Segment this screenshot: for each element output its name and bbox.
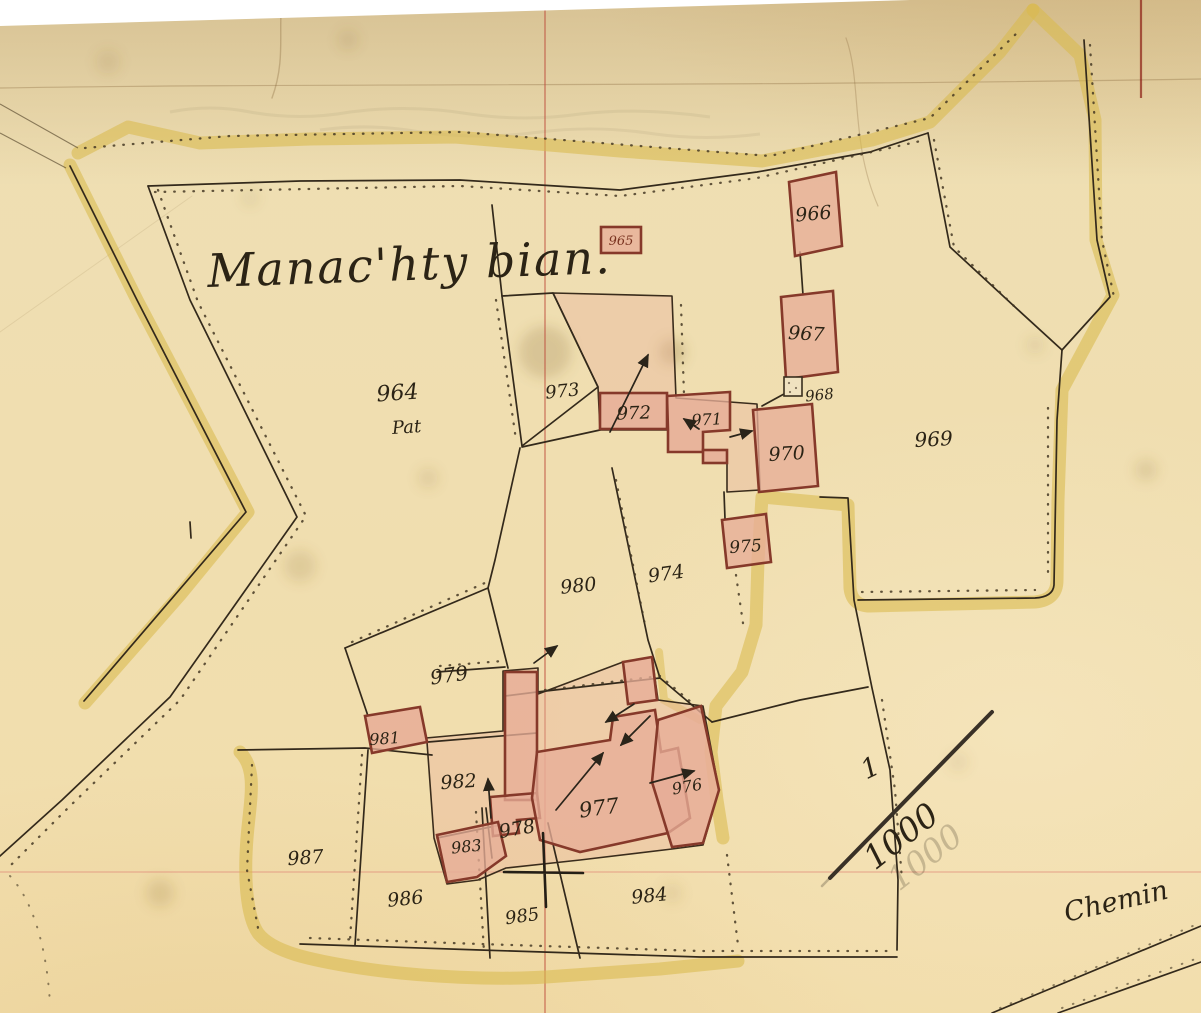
- parcel-label-982: 982: [440, 770, 478, 794]
- parcel-label-981: 981: [369, 728, 401, 749]
- parcel-label-968: 968: [804, 385, 834, 406]
- parcel-label-986: 986: [386, 886, 424, 912]
- parcel-label-984: 984: [630, 883, 668, 909]
- map-canvas: Manac'hty bian. 964 Pat 965 966 967 968 …: [0, 0, 1201, 1013]
- parcel-label-965: 965: [609, 234, 634, 249]
- building-971-annex: [703, 450, 727, 463]
- parcel-label-980: 980: [559, 573, 597, 599]
- parcel-note-964: Pat: [390, 416, 422, 439]
- parcel-label-973: 973: [544, 379, 580, 403]
- building-968: [784, 377, 802, 396]
- parcel-label-971: 971: [691, 409, 722, 430]
- building-tall-strip: [505, 672, 537, 800]
- parcel-label-985: 985: [504, 904, 541, 930]
- parcel-label-967: 967: [788, 322, 826, 346]
- parcel-label-979: 979: [428, 660, 469, 689]
- parcel-label-966: 966: [794, 201, 832, 226]
- scale-numerator: 1: [856, 751, 885, 786]
- map-title: Manac'hty bian.: [205, 230, 612, 298]
- road-label-chemin: Chemin: [1061, 875, 1171, 929]
- parcel-label-972: 972: [616, 402, 651, 424]
- parcel-label-987: 987: [287, 846, 326, 871]
- road-chemin-lines: [992, 926, 1201, 1013]
- parcel-label-983: 983: [450, 835, 482, 857]
- parcel-label-974: 974: [647, 561, 686, 588]
- parcel-label-964: 964: [376, 380, 420, 408]
- building-cluster-ne: [623, 657, 657, 704]
- parcel-label-970: 970: [768, 442, 805, 466]
- parcel-label-975: 975: [729, 536, 763, 558]
- scale-annotation: 1 1000 1000: [856, 751, 970, 899]
- parcel-boundaries: [0, 40, 1201, 1013]
- parcel-label-969: 969: [914, 426, 954, 452]
- cadastral-map: Manac'hty bian. 964 Pat 965 966 967 968 …: [0, 0, 1201, 1013]
